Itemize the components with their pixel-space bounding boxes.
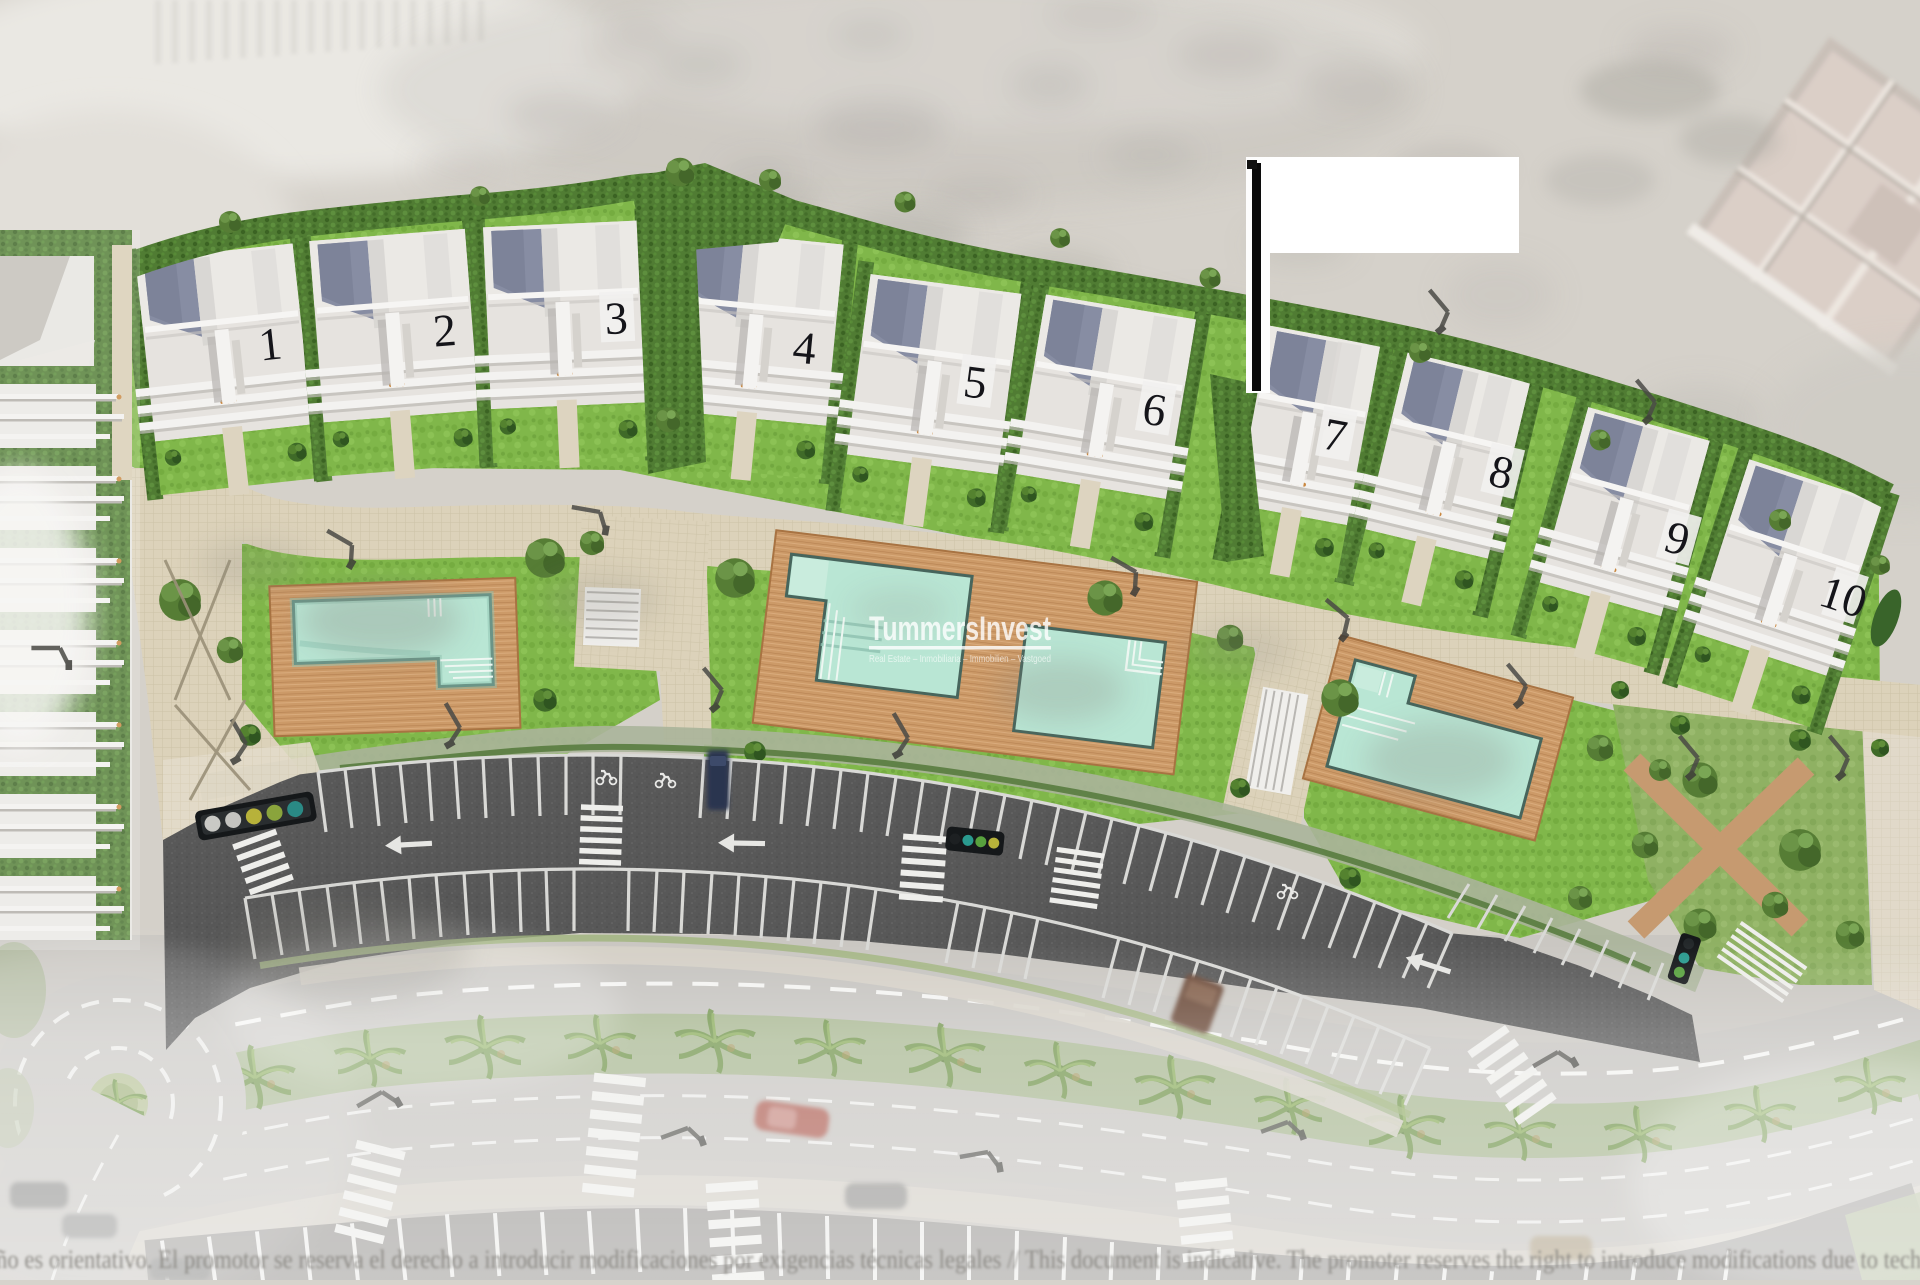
svg-text:eño es orientativo. El promoto: eño es orientativo. El promotor se reser… xyxy=(0,1244,1920,1274)
svg-text:2: 2 xyxy=(431,304,458,357)
svg-text:Real Estate – Inmobiliaria – I: Real Estate – Inmobiliaria – Immobilien … xyxy=(869,653,1051,665)
svg-text:3: 3 xyxy=(604,292,629,344)
svg-text:4: 4 xyxy=(791,321,819,374)
svg-text:TummersInvest: TummersInvest xyxy=(869,610,1051,648)
